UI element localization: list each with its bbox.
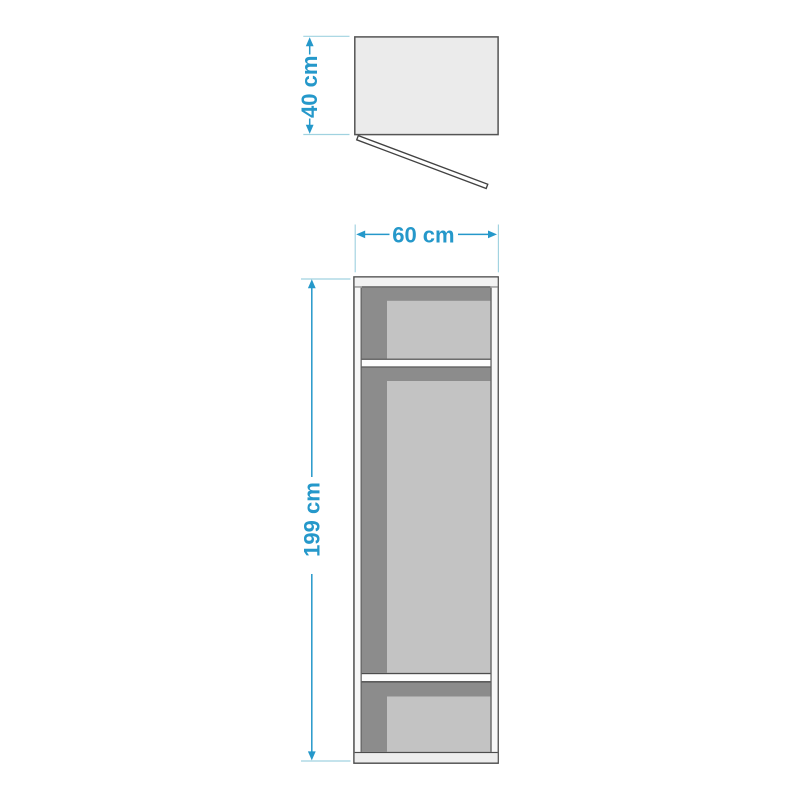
svg-text:40 cm: 40 cm	[297, 56, 322, 118]
svg-text:60 cm: 60 cm	[392, 222, 454, 247]
svg-text:199 cm: 199 cm	[299, 482, 324, 557]
